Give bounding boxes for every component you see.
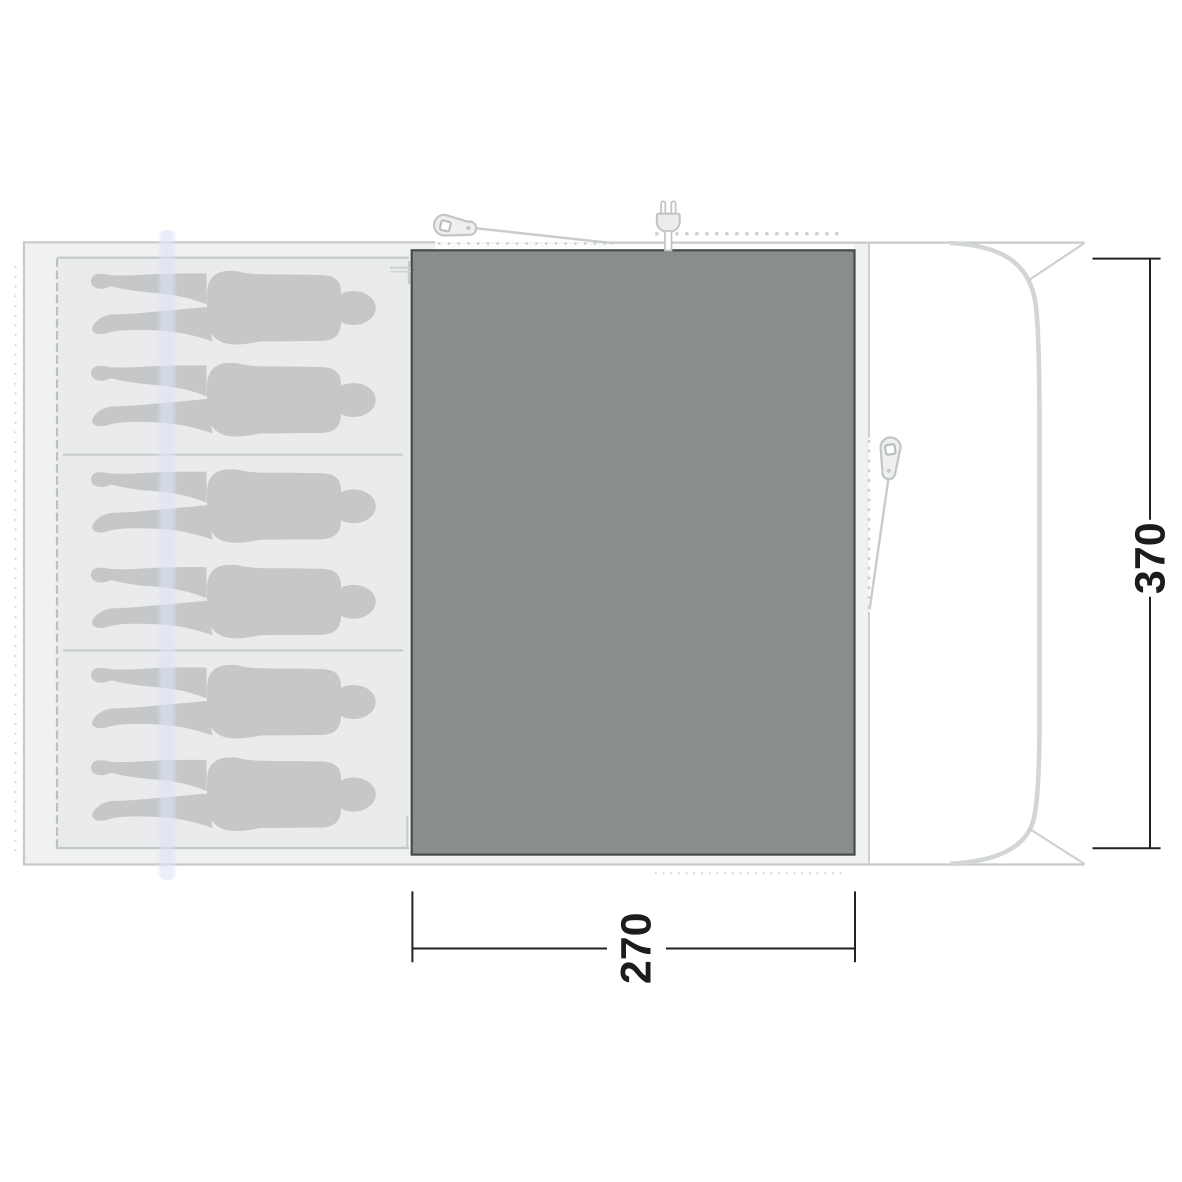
svg-text:370: 370: [1127, 522, 1175, 594]
svg-text:270: 270: [613, 912, 661, 984]
